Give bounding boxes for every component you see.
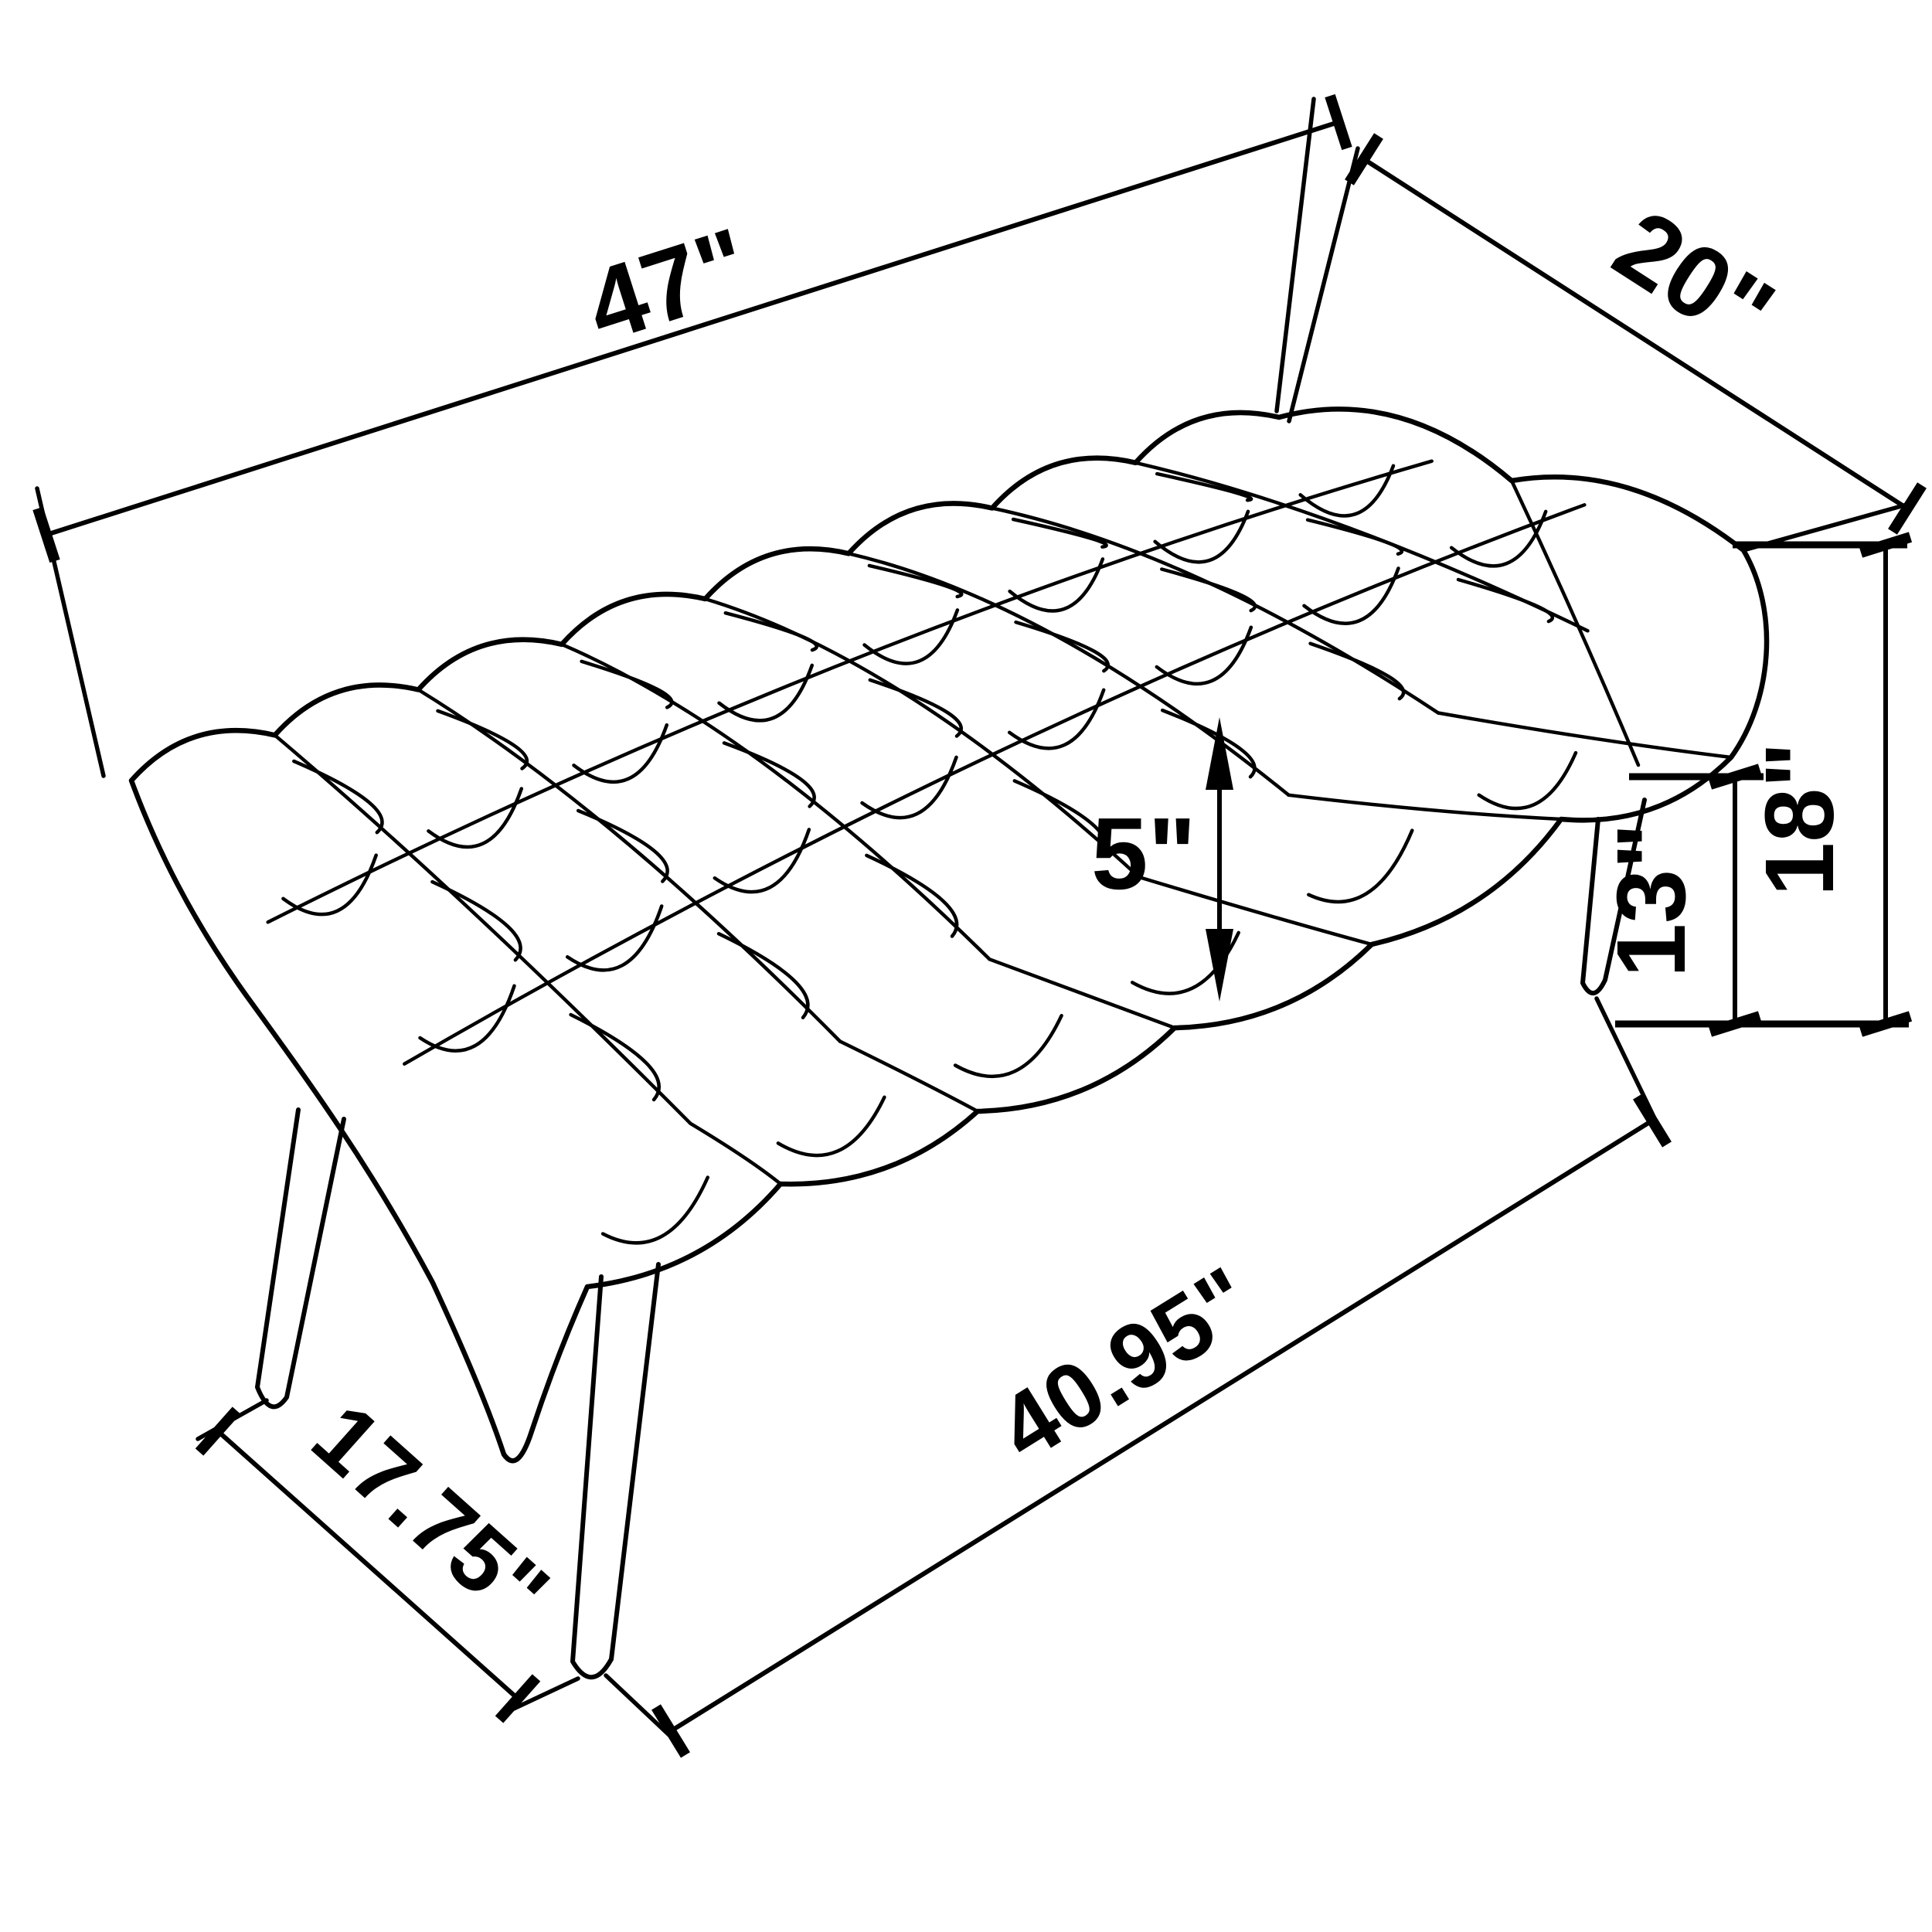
label-leg-height: 13" — [1597, 823, 1706, 978]
label-overall-height: 18" — [1745, 742, 1854, 896]
bench-dimension-diagram: 47" 20" 5" 18" 13" — [0, 0, 1932, 1932]
drawing-canvas: 47" 20" 5" 18" 13" — [0, 0, 1932, 1932]
label-cushion-thickness: 5" — [1091, 797, 1196, 910]
